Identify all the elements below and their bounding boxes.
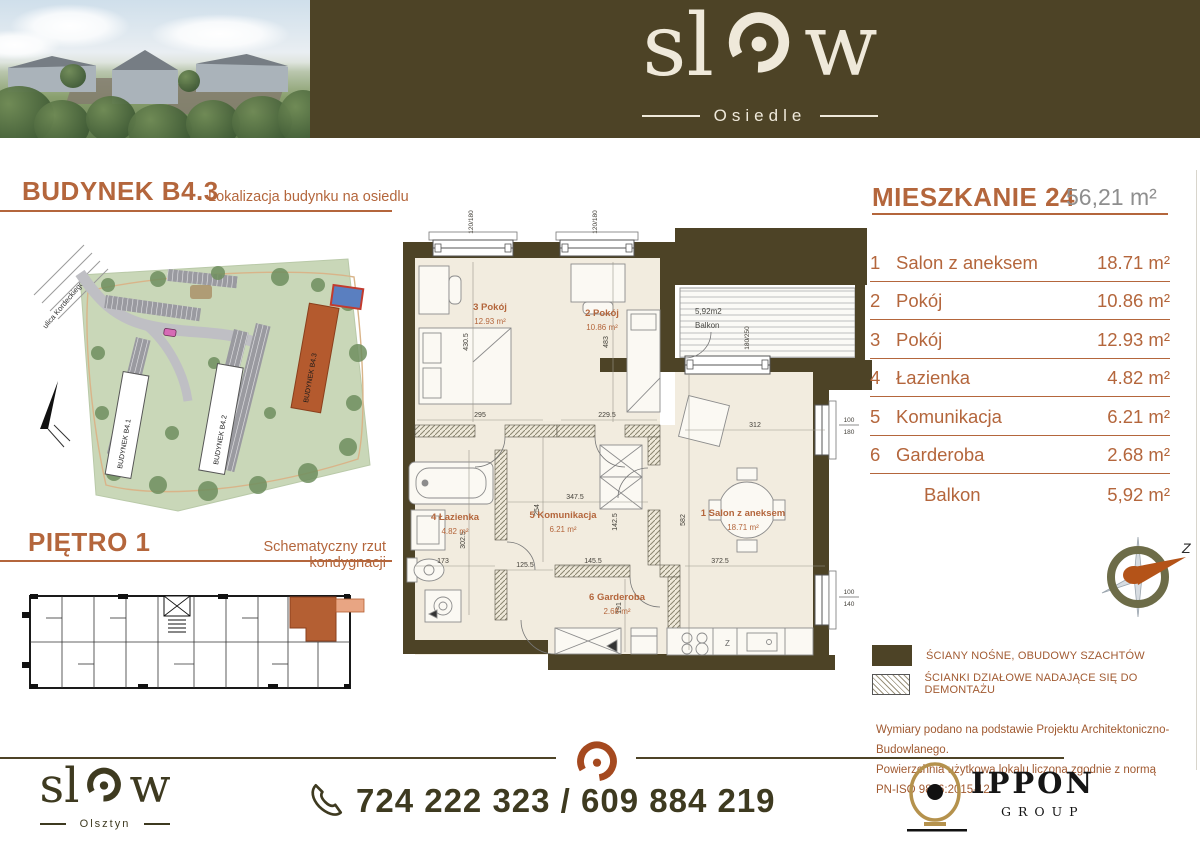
table-row: 6Garderoba2.68 m² <box>870 436 1170 475</box>
kitchen-sink-label: Z <box>725 639 730 648</box>
footer-rule-left <box>0 757 556 759</box>
floor-title-rule <box>0 560 392 562</box>
svg-text:100: 100 <box>844 417 855 424</box>
building-title: BUDYNEK B4.3 <box>22 176 219 207</box>
svg-text:229.5: 229.5 <box>598 412 616 419</box>
svg-text:140: 140 <box>844 601 855 608</box>
label-lazienka: 4 Łazienka <box>431 512 480 523</box>
svg-text:2.68 m²: 2.68 m² <box>603 607 630 616</box>
compass-icon: Z <box>1082 535 1194 619</box>
label-pokoj3: 3 Pokój <box>473 302 507 313</box>
table-row-balkon: Balkon5,92 m² <box>870 474 1170 513</box>
svg-text:173: 173 <box>437 558 449 565</box>
svg-text:582: 582 <box>680 514 687 526</box>
legend-swatch-hatched <box>872 674 910 695</box>
apartment-title: MIESZKANIE 24 <box>872 182 1075 213</box>
table-row: 2Pokój10.86 m² <box>870 282 1170 321</box>
window-dim-top2: 120/180 <box>592 210 599 234</box>
slow-logo-text-sl: sl <box>642 8 714 85</box>
slow-logo-subtitle: Osiedle <box>600 106 920 126</box>
slow-eye-icon <box>716 11 802 77</box>
footer-slow-eye-icon <box>80 767 128 804</box>
svg-text:295: 295 <box>474 412 486 419</box>
svg-text:100: 100 <box>844 589 855 596</box>
svg-text:180: 180 <box>844 429 855 436</box>
building-title-rule <box>0 210 392 212</box>
phone-icon <box>308 782 348 822</box>
svg-text:142.5: 142.5 <box>612 513 619 531</box>
highlighted-unit-balcony <box>336 599 364 612</box>
svg-text:483: 483 <box>603 336 610 348</box>
svg-text:4.82 m²: 4.82 m² <box>441 527 468 536</box>
header-brand-band: sl w Osiedle <box>310 0 1200 138</box>
storey-schematic <box>18 572 378 722</box>
window-dim-top1: 120/180 <box>468 210 475 234</box>
label-komunikacja: 5 Komunikacja <box>529 510 597 521</box>
legend-swatch-solid <box>872 645 912 666</box>
building-subtitle: Lokalizacja budynku na osiedlu <box>208 189 409 205</box>
table-row: 3Pokój12.93 m² <box>870 320 1170 359</box>
svg-text:125.5: 125.5 <box>516 562 534 569</box>
compass-label: Z <box>1181 540 1191 556</box>
svg-text:312: 312 <box>749 422 761 429</box>
room-table: 1Salon z aneksem18.71 m² 2Pokój10.86 m² … <box>870 243 1170 513</box>
phone-numbers[interactable]: 724 222 323 / 609 884 219 <box>356 782 776 820</box>
map-north-arrow <box>40 381 70 447</box>
svg-text:145.5: 145.5 <box>584 558 602 565</box>
floor-title: PIĘTRO 1 <box>28 527 150 558</box>
page-edge-rule <box>1196 170 1197 770</box>
balcony: 5,92m2 Balkon <box>680 288 855 361</box>
brochure-page: sl w Osiedle BUDYNEK B4.3 Lokalizacja bu… <box>0 0 1200 849</box>
apartment-total-area: 56,21 m² <box>1066 184 1157 211</box>
label-salon: 1 Salon z aneksem <box>701 508 785 519</box>
site-map: ulica Kordeckiego BUDYNEK B4.1 BUDYNEK B… <box>18 233 390 525</box>
street-label: ulica Kordeckiego <box>41 279 86 330</box>
aerial-photo <box>0 0 310 138</box>
ippon-logo: IPPON GROUP <box>905 758 1105 840</box>
balcony-area-label: 5,92m2 <box>695 307 722 316</box>
svg-text:372.5: 372.5 <box>711 558 729 565</box>
table-row: 1Salon z aneksem18.71 m² <box>870 243 1170 282</box>
window-dim-bottom: 100 140 <box>839 589 859 608</box>
svg-text:12.93 m²: 12.93 m² <box>474 317 506 326</box>
label-garderoba: 6 Garderoba <box>589 592 646 603</box>
eye-mark-icon <box>560 738 634 786</box>
footer-slow-subtitle: Olsztyn <box>20 818 190 830</box>
svg-text:6.21 m²: 6.21 m² <box>549 525 576 534</box>
footer-slow-logo: sl w <box>20 765 190 808</box>
svg-text:10.86 m²: 10.86 m² <box>586 323 618 332</box>
legend-item-partition: ŚCIANKI DZIAŁOWE NADAJĄCE SIĘ DO DEMONTA… <box>872 672 1200 696</box>
svg-text:18.71 m²: 18.71 m² <box>727 523 759 532</box>
svg-text:430.5: 430.5 <box>463 333 470 351</box>
svg-text:347.5: 347.5 <box>566 494 584 501</box>
ippon-mark-icon <box>905 760 969 836</box>
table-row: 4Łazienka4.82 m² <box>870 359 1170 398</box>
slow-logo-text-w: w <box>804 8 878 85</box>
apartment-title-rule <box>872 213 1168 215</box>
balcony-label: Balkon <box>695 321 719 330</box>
window-dim-right: 100 180 <box>839 417 859 436</box>
legend-item-bearing: ŚCIANY NOŚNE, OBUDOWY SZACHTÓW <box>872 645 1145 666</box>
table-row: 5Komunikacja6.21 m² <box>870 397 1170 436</box>
label-pokoj2: 2 Pokój <box>585 308 619 319</box>
window-dim-balcony-door: 180/250 <box>744 326 751 350</box>
apartment-floorplan: 5,92m2 Balkon <box>395 210 875 685</box>
floor-subtitle: Schematyczny rzut kondygnacji <box>200 539 386 571</box>
slow-logo: sl w <box>600 8 920 85</box>
